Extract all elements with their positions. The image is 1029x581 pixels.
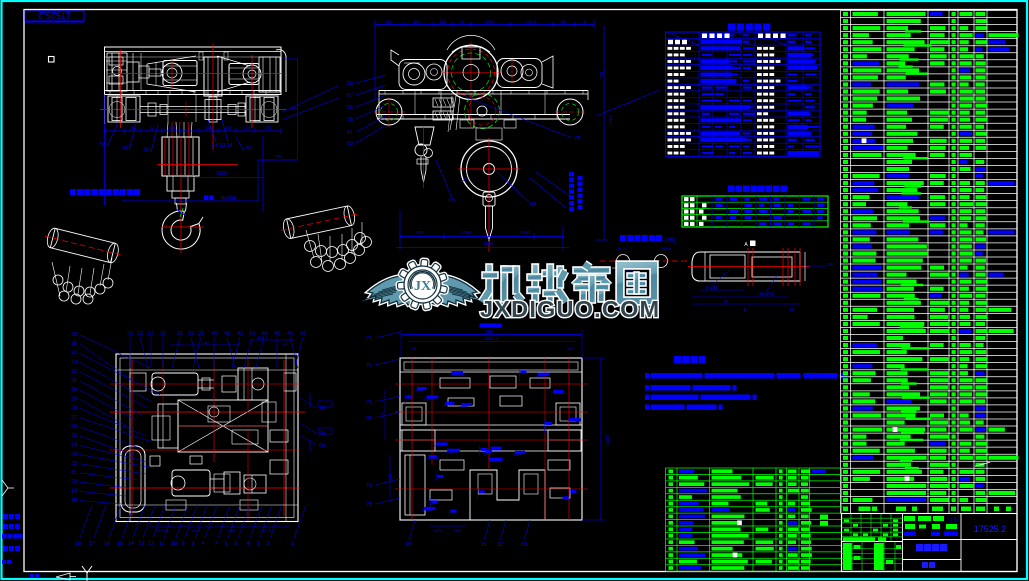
svg-text:17: 17: [89, 541, 95, 547]
svg-text:75: 75: [366, 336, 372, 342]
svg-text:80: 80: [789, 307, 795, 312]
svg-text:10: 10: [171, 541, 177, 547]
svg-text:345: 345: [567, 346, 574, 351]
svg-text:25: 25: [827, 262, 833, 267]
svg-text:42: 42: [150, 125, 155, 130]
svg-text:41: 41: [224, 331, 230, 337]
svg-text:2: 2: [266, 541, 269, 547]
svg-text:2300: 2300: [216, 171, 227, 177]
svg-text:40: 40: [211, 331, 217, 337]
svg-text:50: 50: [144, 147, 150, 153]
svg-text:/ / B: / / B: [947, 518, 957, 524]
svg-text:15: 15: [117, 541, 123, 547]
svg-text:1452: 1452: [486, 19, 496, 24]
svg-text:7: 7: [214, 541, 217, 547]
svg-text:34: 34: [71, 350, 77, 356]
svg-text:81: 81: [481, 542, 487, 548]
svg-text:31: 31: [71, 378, 77, 384]
svg-text:31: 31: [177, 331, 183, 337]
svg-text:39: 39: [160, 331, 166, 337]
svg-text:24: 24: [71, 442, 77, 448]
svg-text:528: 528: [485, 329, 493, 334]
svg-text:14: 14: [460, 178, 466, 184]
svg-text:30: 30: [71, 387, 77, 393]
svg-text:71: 71: [574, 136, 580, 142]
svg-text:21: 21: [71, 470, 77, 476]
svg-text:4475: 4475: [605, 434, 610, 445]
svg-text:80: 80: [406, 542, 412, 548]
svg-text:1180: 1180: [201, 340, 210, 345]
svg-text:27: 27: [71, 415, 77, 421]
svg-text:43: 43: [249, 331, 255, 337]
svg-text:22: 22: [137, 331, 143, 337]
svg-text:453.15: 453.15: [156, 528, 169, 533]
svg-text:3: 3: [256, 541, 259, 547]
svg-text:4923.4: 4923.4: [484, 336, 498, 341]
svg-text:57: 57: [347, 93, 353, 99]
svg-text:23: 23: [71, 452, 77, 458]
svg-text:50: 50: [100, 142, 106, 148]
svg-text:38: 38: [71, 332, 77, 338]
svg-text:86: 86: [561, 19, 566, 24]
svg-text:22: 22: [71, 461, 77, 467]
svg-text:34.2: 34.2: [617, 246, 626, 251]
svg-text:764.5: 764.5: [526, 19, 537, 24]
svg-text:5: 5: [234, 541, 237, 547]
svg-text:57: 57: [148, 331, 154, 337]
svg-text:163: 163: [440, 19, 447, 24]
svg-text:11: 11: [159, 541, 165, 547]
svg-text:17525.2: 17525.2: [974, 524, 1007, 534]
svg-text:9: 9: [181, 541, 184, 547]
svg-text:18: 18: [71, 498, 77, 504]
svg-text:42: 42: [237, 331, 243, 337]
svg-text:83: 83: [521, 542, 527, 548]
svg-text:23: 23: [188, 331, 194, 337]
svg-text:495: 495: [130, 125, 137, 130]
svg-text:28: 28: [71, 406, 77, 412]
svg-text:1557: 1557: [454, 528, 464, 533]
svg-text:708: 708: [274, 154, 282, 159]
svg-text:JXDIGUO.COM: JXDIGUO.COM: [480, 296, 660, 322]
svg-text:31: 31: [366, 416, 372, 422]
svg-text:82: 82: [497, 542, 503, 548]
svg-text:298: 298: [265, 125, 272, 130]
svg-text:20: 20: [71, 479, 77, 485]
svg-text:65: 65: [449, 198, 455, 204]
svg-text:58: 58: [347, 81, 353, 87]
svg-text:JX: JX: [414, 279, 431, 294]
svg-text:17525.2: 17525.2: [38, 10, 71, 20]
svg-text:4: 4: [201, 541, 204, 547]
svg-text:850: 850: [386, 19, 393, 24]
svg-text:78: 78: [366, 483, 372, 489]
svg-text:33: 33: [71, 360, 77, 366]
svg-text:13: 13: [138, 541, 144, 547]
svg-text:26: 26: [71, 424, 77, 430]
svg-text:695: 695: [229, 528, 236, 533]
svg-text:56: 56: [347, 105, 353, 111]
svg-text:6: 6: [224, 541, 227, 547]
svg-text:32: 32: [71, 369, 77, 375]
svg-text:19: 19: [71, 488, 77, 494]
svg-text:580: 580: [169, 125, 176, 130]
svg-text:(kN): (kN): [664, 238, 675, 244]
svg-text:79: 79: [366, 502, 372, 508]
svg-text:64: 64: [530, 202, 536, 208]
svg-text:8-φ22: 8-φ22: [706, 285, 718, 290]
svg-text:400: 400: [416, 230, 424, 235]
svg-text:54 13 14: 54 13 14: [211, 143, 232, 149]
svg-text:70: 70: [460, 19, 465, 24]
svg-text:47: 47: [300, 331, 306, 337]
svg-text:460.3: 460.3: [257, 335, 268, 340]
svg-text:84: 84: [723, 299, 729, 304]
svg-text:H=904: H=904: [221, 196, 236, 202]
svg-text:302: 302: [282, 342, 289, 347]
svg-text:4: 4: [246, 541, 249, 547]
svg-text:52: 52: [347, 141, 353, 147]
svg-text:4478: 4478: [434, 528, 444, 533]
svg-text:23: 23: [127, 331, 133, 337]
svg-text:46: 46: [287, 331, 293, 337]
svg-text:1643: 1643: [387, 473, 392, 483]
svg-text:775.3: 775.3: [261, 528, 272, 533]
svg-text:35: 35: [71, 341, 77, 347]
svg-text:1296: 1296: [461, 230, 472, 235]
svg-text:29: 29: [71, 396, 77, 402]
svg-text:470: 470: [244, 125, 251, 130]
svg-text:34.04: 34.04: [661, 246, 672, 251]
svg-text:820: 820: [225, 125, 232, 130]
svg-text:77: 77: [366, 400, 372, 406]
svg-text:16: 16: [104, 541, 110, 547]
svg-text:98: 98: [412, 346, 417, 351]
svg-text:1: 1: [290, 541, 293, 547]
svg-text:55: 55: [246, 146, 252, 152]
svg-text:18: 18: [75, 541, 81, 547]
svg-text:76: 76: [366, 363, 372, 369]
svg-text:60: 60: [319, 443, 325, 449]
svg-text:1650: 1650: [520, 230, 531, 235]
svg-text:764: 764: [599, 71, 604, 79]
svg-text:45: 45: [274, 331, 280, 337]
svg-text:55: 55: [347, 117, 353, 123]
svg-text:14: 14: [128, 541, 134, 547]
svg-text:52: 52: [122, 146, 128, 152]
svg-text:25: 25: [198, 331, 204, 337]
svg-text:61: 61: [347, 130, 353, 136]
svg-text:1764: 1764: [608, 114, 613, 125]
svg-text:12: 12: [148, 541, 154, 547]
svg-text:140: 140: [414, 19, 421, 24]
svg-text:25: 25: [71, 433, 77, 439]
svg-text:64.5: 64.5: [192, 528, 201, 533]
svg-text:3866: 3866: [483, 241, 494, 246]
svg-text:3: 3: [191, 541, 194, 547]
